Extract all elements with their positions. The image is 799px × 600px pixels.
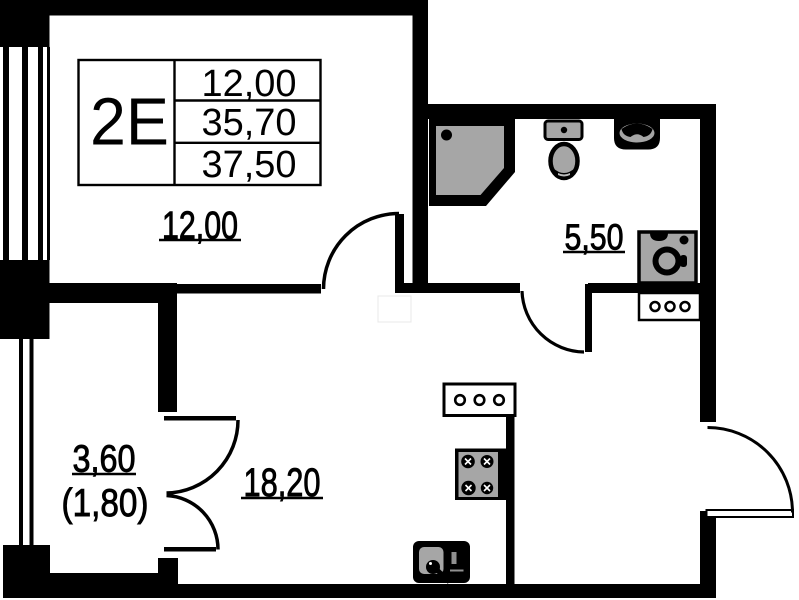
- svg-text:(1,80): (1,80): [62, 482, 149, 525]
- svg-text:37,50: 37,50: [202, 144, 297, 186]
- svg-text:2E: 2E: [90, 85, 169, 160]
- svg-text:35,70: 35,70: [202, 102, 297, 144]
- svg-text:12,00: 12,00: [202, 63, 297, 105]
